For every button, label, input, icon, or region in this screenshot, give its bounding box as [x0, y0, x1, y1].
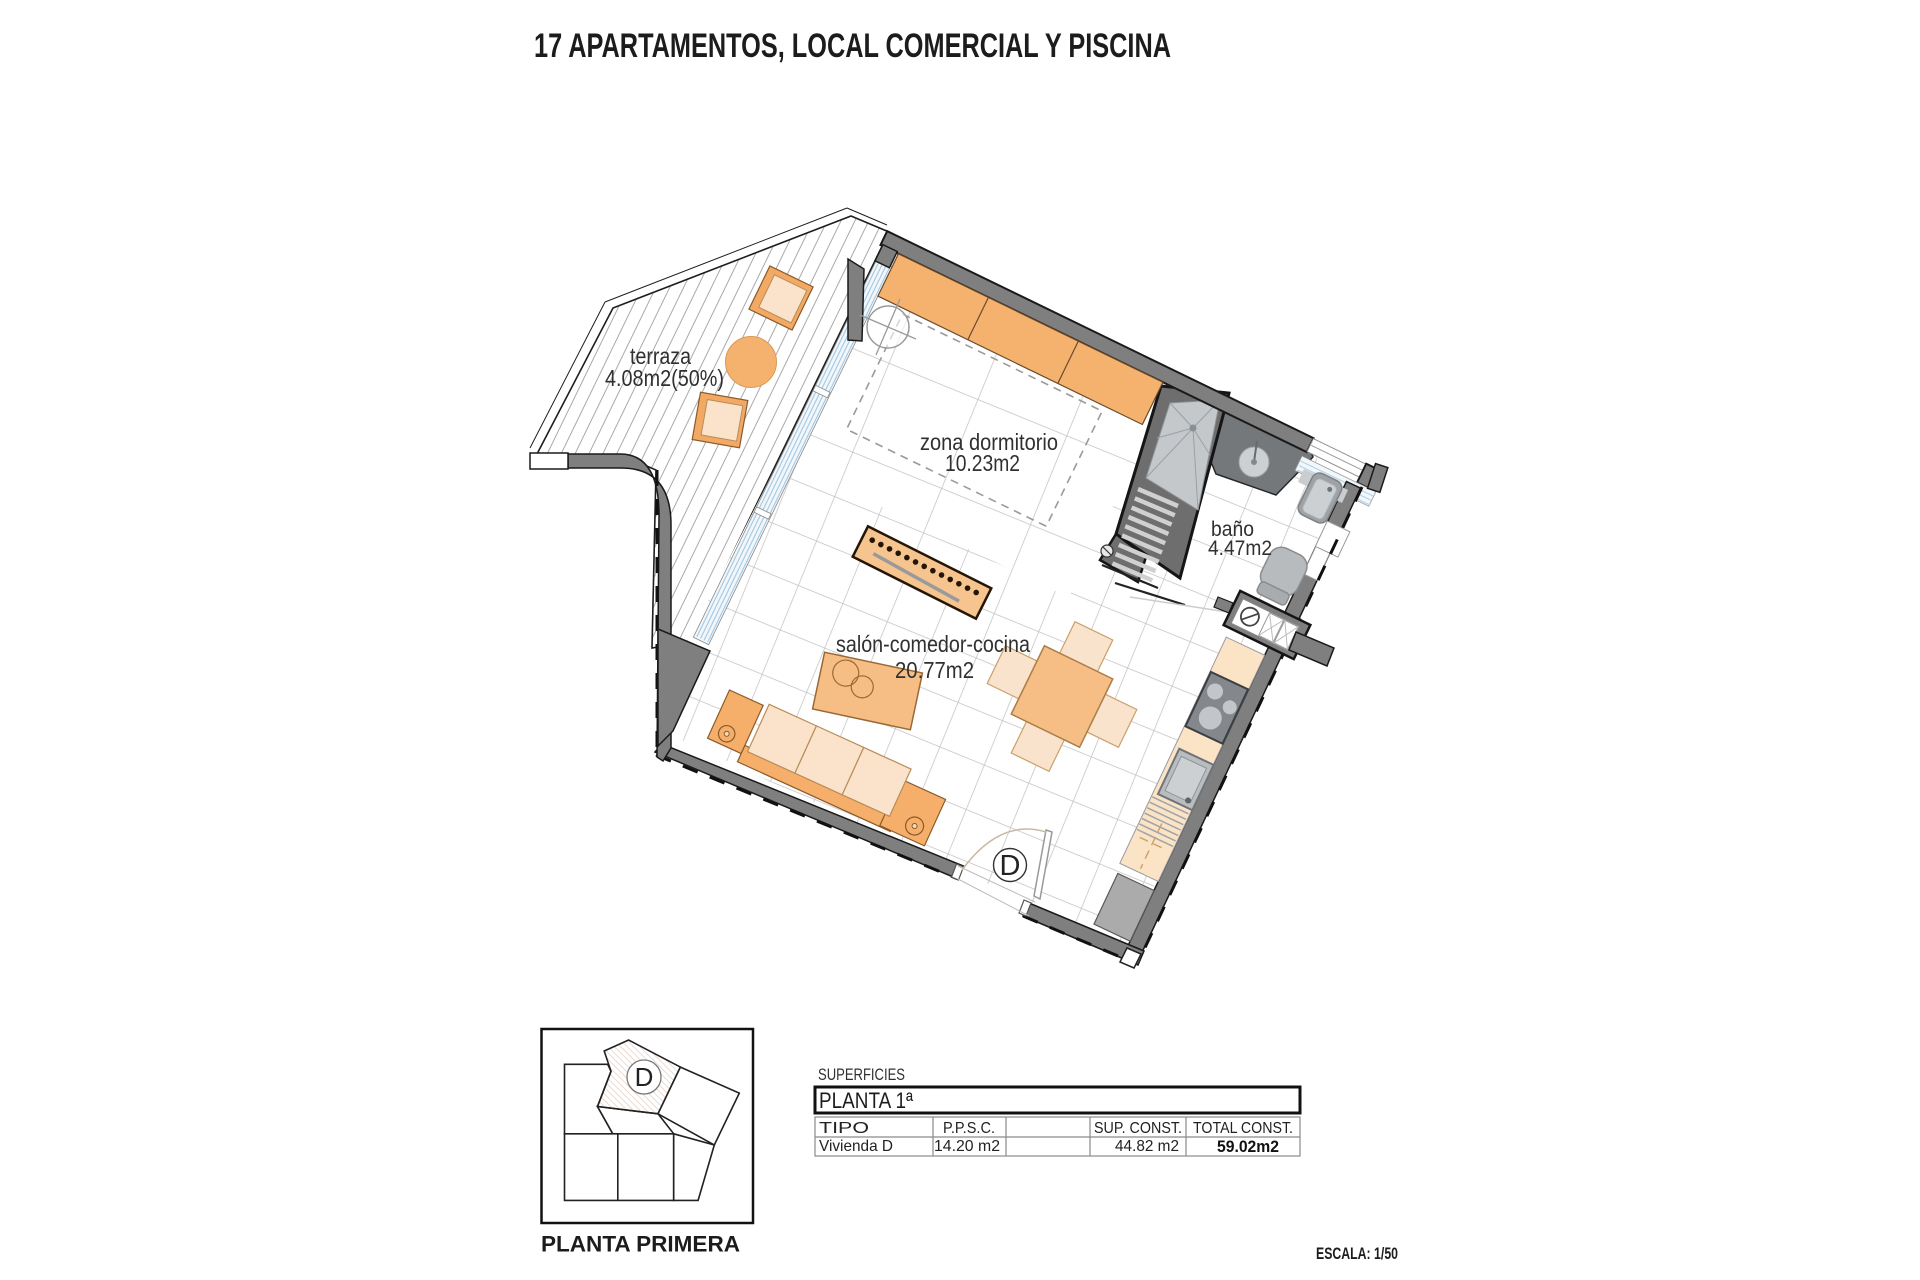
svg-text:TOTAL CONST.: TOTAL CONST.: [1193, 1120, 1293, 1137]
svg-text:20.77m2: 20.77m2: [895, 657, 974, 683]
svg-text:D: D: [1000, 850, 1021, 882]
svg-text:SUPERFICIES: SUPERFICIES: [818, 1065, 905, 1084]
svg-text:PLANTA PRIMERA: PLANTA PRIMERA: [541, 1232, 740, 1257]
svg-text:4.08m2(50%): 4.08m2(50%): [605, 365, 724, 391]
svg-text:SUP. CONST.: SUP. CONST.: [1094, 1120, 1182, 1137]
svg-text:PLANTA 1ª: PLANTA 1ª: [819, 1088, 914, 1113]
svg-text:17 APARTAMENTOS, LOCAL COMERCI: 17 APARTAMENTOS, LOCAL COMERCIAL Y PISCI…: [534, 27, 1171, 65]
svg-text:TIPO: TIPO: [819, 1120, 869, 1137]
svg-text:ESCALA: 1/50: ESCALA: 1/50: [1316, 1244, 1398, 1263]
svg-text:Vivienda D: Vivienda D: [819, 1138, 893, 1155]
svg-text:D: D: [635, 1062, 654, 1092]
svg-text:salón-comedor-cocina: salón-comedor-cocina: [836, 631, 1030, 657]
svg-text:59.02m2: 59.02m2: [1217, 1137, 1279, 1156]
svg-text:P.P.S.C.: P.P.S.C.: [943, 1120, 995, 1137]
svg-text:44.82 m2: 44.82 m2: [1115, 1138, 1179, 1155]
svg-text:14.20 m2: 14.20 m2: [934, 1138, 1000, 1155]
svg-text:10.23m2: 10.23m2: [945, 450, 1020, 476]
svg-text:4.47m2: 4.47m2: [1208, 537, 1272, 560]
